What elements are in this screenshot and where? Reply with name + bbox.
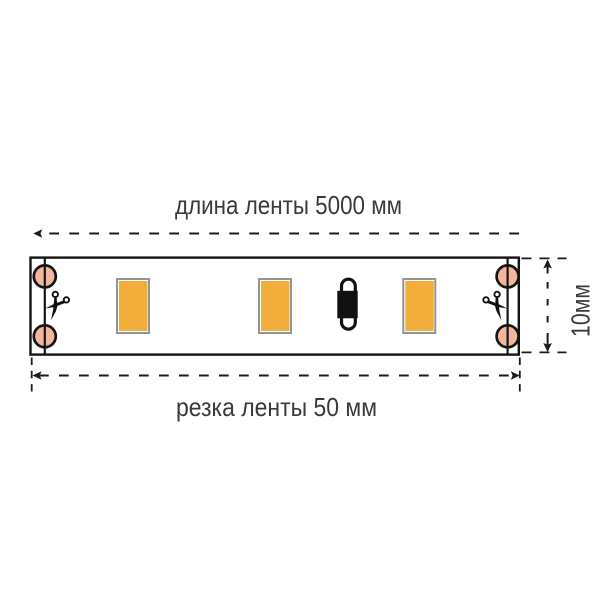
svg-text:длина ленты 5000 мм: длина ленты 5000 мм — [175, 190, 402, 220]
svg-text:резка ленты 50 мм: резка ленты 50 мм — [176, 392, 377, 422]
svg-text:10мм: 10мм — [566, 284, 596, 337]
